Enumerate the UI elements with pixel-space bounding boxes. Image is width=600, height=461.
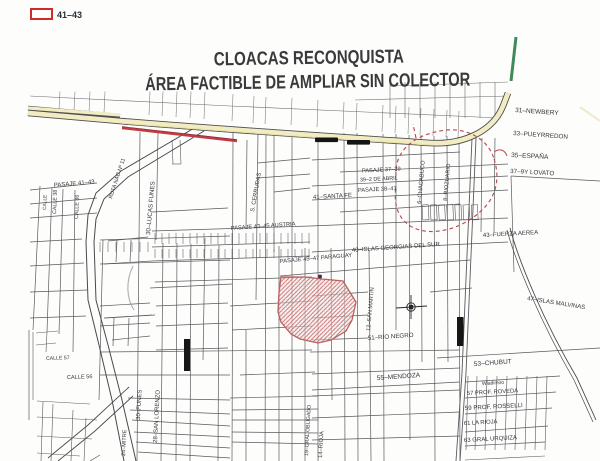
svg-text:CLOACAS RECONQUISTA: CLOACAS RECONQUISTA: [214, 47, 405, 71]
svg-text:CALLE 57: CALLE 57: [46, 355, 70, 362]
svg-text:CALLE 36: CALLE 36: [74, 195, 81, 219]
svg-text:CALLE 56: CALLE 56: [67, 374, 93, 381]
svg-text:CALLE 38: CALLE 38: [52, 190, 59, 214]
svg-text:41–43: 41–43: [57, 10, 82, 20]
svg-text:Wladimiro: Wladimiro: [482, 380, 505, 387]
svg-text:CALLE: CALLE: [42, 195, 49, 210]
